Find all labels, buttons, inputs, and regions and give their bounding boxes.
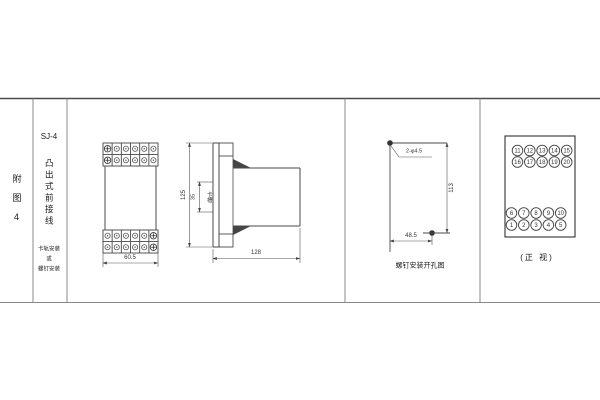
generated-terminals: 1112131415161718192067891012345 xyxy=(103,143,572,253)
terminal-number: 11 xyxy=(514,149,521,155)
wiring-type-label: 凸出式前接线 xyxy=(45,159,54,228)
terminal-screw-dot xyxy=(144,247,145,248)
terminal-screw-dot xyxy=(134,148,135,149)
slot-dim: 35 xyxy=(191,194,197,200)
terminal-screw-dot xyxy=(125,247,126,248)
drill-caption: 螺钉安装开孔图 xyxy=(396,263,445,270)
terminal-number: 4 xyxy=(547,223,551,229)
terminal-screw-dot xyxy=(116,247,117,248)
terminal-screw-dot xyxy=(153,148,154,149)
mount-note-line1: 卡轨安装 xyxy=(38,247,60,253)
mount-note-line2: 或 xyxy=(46,257,52,263)
technical-drawing: 1112131415161718192067891012345 xyxy=(0,0,600,400)
terminal-number: 2 xyxy=(522,223,526,229)
terminal-number: 1 xyxy=(510,223,514,229)
drill-width-dim: 48.5 xyxy=(405,233,417,239)
terminal-screw-dot xyxy=(144,148,145,149)
terminal-caption: (正 视) xyxy=(520,254,554,262)
terminal-number: 5 xyxy=(559,223,563,229)
terminal-screw-dot xyxy=(134,160,135,161)
mount-note-line3: 螺钉安装 xyxy=(38,267,60,273)
side-depth-dim: 128 xyxy=(251,250,261,256)
terminal-screw-dot xyxy=(107,247,108,248)
drawing-sheet: 1112131415161718192067891012345 附图4 SJ-4… xyxy=(0,0,600,400)
front-width-dim: 60.5 xyxy=(124,255,136,261)
model-label: SJ-4 xyxy=(41,133,57,141)
terminal-number: 3 xyxy=(534,223,538,229)
terminal-screw-dot xyxy=(134,235,135,236)
terminal-screw-dot xyxy=(125,160,126,161)
figure-number-label: 附图4 xyxy=(12,174,21,232)
terminal-screw-dot xyxy=(125,148,126,149)
terminal-screw-dot xyxy=(144,235,145,236)
terminal-number: 16 xyxy=(514,160,521,166)
drill-diagram xyxy=(387,140,450,252)
holes-spec-label: 2-φ4.5 xyxy=(406,149,422,155)
terminal-number: 6 xyxy=(510,211,514,217)
terminal-screw-dot xyxy=(116,160,117,161)
terminal-number: 15 xyxy=(563,149,570,155)
terminal-number: 20 xyxy=(563,160,570,166)
terminal-screw-dot xyxy=(116,148,117,149)
slot-label: 卡槽 xyxy=(205,192,211,203)
terminal-number: 8 xyxy=(534,211,538,217)
terminal-number: 14 xyxy=(551,149,558,155)
terminal-number: 13 xyxy=(539,149,546,155)
terminal-number: 19 xyxy=(551,160,558,166)
terminal-screw-dot xyxy=(107,235,108,236)
terminal-number: 7 xyxy=(522,211,526,217)
side-height-dim: 125 xyxy=(181,190,187,200)
side-view-drawing xyxy=(186,143,300,263)
drill-height-dim: 113 xyxy=(449,183,455,193)
terminal-number: 18 xyxy=(539,160,546,166)
mount-hole-top xyxy=(387,140,393,146)
terminal-screw-dot xyxy=(116,235,117,236)
terminal-screw-dot xyxy=(125,235,126,236)
terminal-number: 9 xyxy=(547,211,551,217)
terminal-screw-dot xyxy=(134,247,135,248)
terminal-screw-dot xyxy=(153,160,154,161)
terminal-screw-dot xyxy=(144,160,145,161)
terminal-number: 10 xyxy=(557,211,564,217)
terminal-number: 12 xyxy=(526,149,533,155)
terminal-number: 17 xyxy=(526,160,533,166)
